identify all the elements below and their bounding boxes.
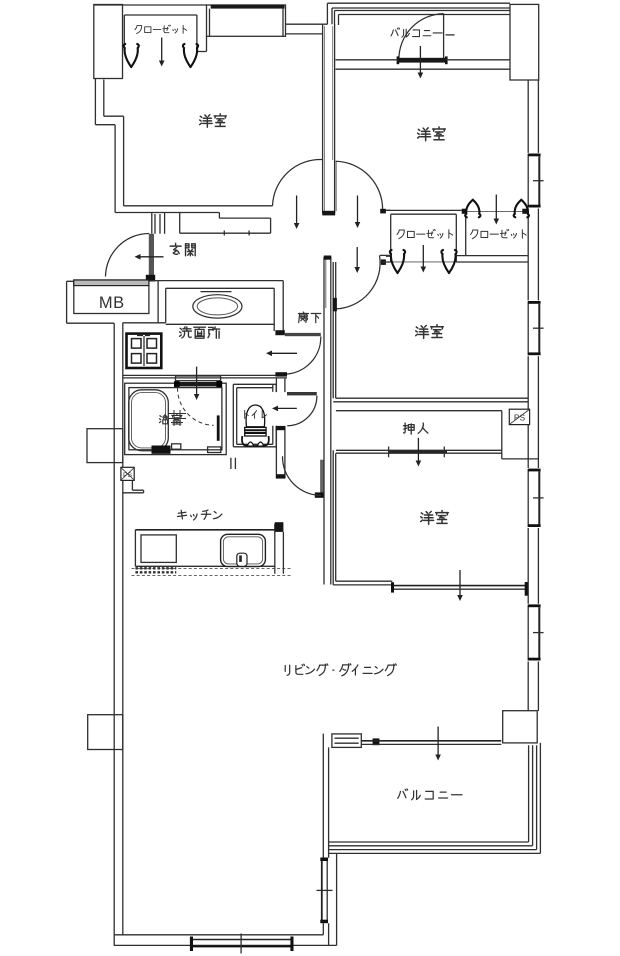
svg-text:PS: PS — [123, 472, 133, 479]
svg-text:PS: PS — [514, 412, 526, 422]
svg-text:MB: MB — [99, 294, 125, 312]
